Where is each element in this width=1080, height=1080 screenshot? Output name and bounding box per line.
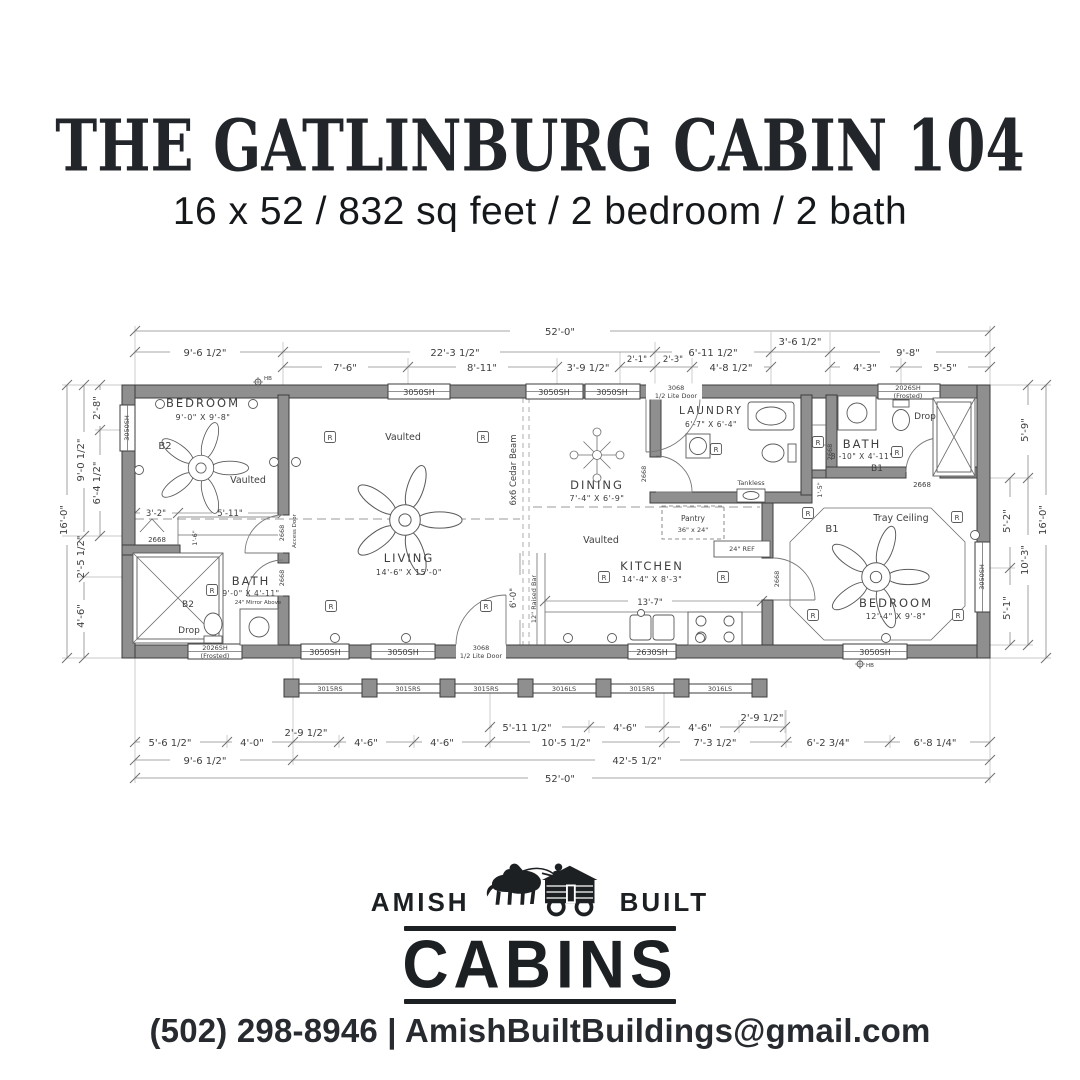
laundry-fixtures	[686, 402, 796, 502]
dim-label: 4'-6"	[430, 738, 454, 749]
ceiling-fans	[158, 421, 929, 630]
window-label: 3050SH	[387, 648, 418, 657]
drop-label-bath2: Drop	[178, 626, 200, 636]
dim-label: 5'-6 1/2"	[149, 738, 192, 749]
window-label: 2630SH	[636, 648, 667, 657]
receptacle-icon: R	[484, 603, 489, 611]
door-label: 1/2 Lite Door	[655, 392, 698, 400]
room-label-bath2: BATH	[232, 574, 271, 588]
poster: THE GATLINBURG CABIN 104 16 x 52 / 832 s…	[0, 0, 1080, 1080]
fridge-label: 24" REF	[729, 545, 755, 553]
drop-label-bath1: Drop	[914, 412, 936, 422]
ceiling-living: Vaulted	[385, 432, 421, 443]
dim-label: 10'-3"	[1020, 545, 1031, 575]
dim-label: 6'-4 1/2"	[92, 462, 103, 505]
dim-label: 2'-3"	[663, 355, 683, 365]
room-size-kitchen: 14'-4" X 8'-3"	[622, 575, 683, 584]
dim-label: 6'-11 1/2"	[688, 348, 737, 359]
dim-label: 9'-0 1/2"	[76, 439, 87, 482]
room-label-bedroom1: BEDROOM	[859, 596, 933, 610]
door-size-label: 2668	[913, 481, 931, 489]
rail-label: 3015RS	[473, 685, 498, 693]
window-label: 3050SH	[123, 415, 131, 441]
door-size-label: 2668	[148, 536, 166, 544]
dim-label: 6'-0"	[509, 588, 519, 608]
dim-label: 6'-2 3/4"	[807, 738, 850, 749]
dim-label: 5'-5"	[933, 363, 957, 374]
receptacle-icon: R	[714, 446, 719, 454]
dim-label: 10'-5 1/2"	[541, 738, 590, 749]
room-size-bedroom1: 12'-4" X 9'-8"	[866, 612, 927, 621]
door-label: 3068	[473, 644, 490, 652]
dim-label: 2'-5 1/2"	[76, 536, 87, 579]
dim-label: 52'-0"	[545, 327, 575, 338]
dim-label: 5'-9"	[1020, 418, 1031, 442]
dim-label: 4'-6"	[613, 723, 637, 734]
receptacle-icon: R	[329, 603, 334, 611]
dim-label: 8'-11"	[467, 363, 497, 374]
raised-bar-label: 12" Raised Bar	[530, 575, 538, 624]
dim-label: 2'-8"	[92, 396, 103, 420]
room-label-laundry: LAUNDRY	[679, 405, 743, 417]
dim-label: 4'-8 1/2"	[710, 363, 753, 374]
dim-label: 5'-11"	[217, 509, 243, 519]
dim-label: 4'-6"	[688, 723, 712, 734]
room-label-bath1: BATH	[843, 437, 882, 451]
tankless-label: Tankless	[736, 479, 765, 487]
room-size-bath1: 8'-10" X 4'-11"	[831, 452, 893, 461]
window-label: 2026SH	[895, 384, 921, 392]
window-label: 3050SH	[978, 564, 986, 590]
room-tag-bedroom1: B1	[825, 524, 838, 535]
window-label: 3050SH	[596, 388, 627, 397]
window-label: 3050SH	[403, 388, 434, 397]
window-label: 3050SH	[309, 648, 340, 657]
ceiling-bedroom2: Vaulted	[230, 475, 266, 486]
receptacle-icon: R	[721, 574, 726, 582]
room-label-kitchen: KITCHEN	[620, 559, 684, 573]
dim-label: 5'-1"	[1002, 596, 1013, 620]
contact-line: (502) 298-8946 | AmishBuiltBuildings@gma…	[0, 1012, 1080, 1050]
receptacle-icon: R	[895, 449, 900, 457]
dim-label: 9'-6 1/2"	[184, 756, 227, 767]
horse-wagon-icon	[470, 852, 620, 926]
dim-label: 4'-3"	[853, 363, 877, 374]
room-size-bath2: 9'-0" X 4'-11"	[222, 589, 279, 598]
logo-word-amish: AMISH	[371, 887, 470, 926]
receptacle-icon: R	[481, 434, 486, 442]
dim-label: 16'-0"	[1038, 505, 1049, 535]
door-size-label: 2668	[278, 525, 286, 542]
dim-label: 52'-0"	[545, 774, 575, 785]
dim-label: 4'-6"	[76, 604, 87, 628]
dim-label: 3'-6 1/2"	[779, 337, 822, 348]
window-label: (Frosted)	[201, 652, 230, 660]
window-label: 2026SH	[202, 644, 228, 652]
rail-label: 3015RS	[317, 685, 342, 693]
rail-label: 3015RS	[629, 685, 654, 693]
rail-label: 3016LS	[552, 685, 576, 693]
receptacle-icon: R	[328, 434, 333, 442]
dim-label: 1'-6"	[191, 530, 199, 545]
bath2-fixtures	[133, 553, 278, 645]
dim-label: 2'-9 1/2"	[285, 728, 328, 739]
room-size-dining: 7'-4" X 6'-9"	[570, 494, 625, 503]
receptacle-icon: R	[811, 612, 816, 620]
dim-label: 5'-2"	[1002, 509, 1013, 533]
rail-label: 3016LS	[708, 685, 732, 693]
room-size-bedroom2: 9'-0" X 9'-8"	[176, 413, 231, 422]
door-size-label: 2668	[278, 570, 286, 587]
window-label: 3050SH	[859, 648, 890, 657]
rail-label: 3015RS	[395, 685, 420, 693]
hb-label: HB	[264, 376, 272, 382]
window-label: (Frosted)	[894, 392, 923, 400]
receptacle-icon: R	[956, 612, 961, 620]
light-symbols	[135, 400, 980, 643]
room-tag-bath2: B2	[182, 600, 194, 610]
dim-label: 16'-0"	[59, 505, 70, 535]
dim-label: 5'-11 1/2"	[502, 723, 551, 734]
receptacle-icon: R	[210, 587, 215, 595]
room-label-living: LIVING	[384, 551, 435, 565]
logo-word-built: BUILT	[620, 887, 710, 926]
dim-label: 42'-5 1/2"	[612, 756, 661, 767]
dim-label: 6'-8 1/4"	[914, 738, 957, 749]
receptacle-icon: R	[816, 439, 821, 447]
mirror-label: 24" Mirror Above	[235, 600, 282, 606]
interior-walls	[122, 395, 977, 645]
dim-label: 22'-3 1/2"	[430, 348, 479, 359]
cedar-beam-label: 6x6 Cedar Beam	[509, 434, 519, 505]
dim-label: 13'-7"	[637, 598, 663, 608]
dim-label: 2'-9 1/2"	[741, 713, 784, 724]
room-label-bedroom2: BEDROOM	[166, 396, 240, 410]
dim-label: 4'-6"	[354, 738, 378, 749]
window-label: 3050SH	[538, 388, 569, 397]
pantry-label: Pantry	[681, 514, 706, 523]
door-size-label: 2668	[826, 444, 834, 461]
receptacle-icon: R	[806, 510, 811, 518]
room-label-dining: DINING	[570, 478, 624, 492]
receptacle-icon: R	[955, 514, 960, 522]
logo-word-cabins: CABINS	[402, 931, 677, 997]
room-size-living: 14'-6" X 15'-0"	[376, 568, 442, 577]
door-size-label: 2668	[773, 571, 781, 588]
dim-label: 7'-3 1/2"	[694, 738, 737, 749]
dim-label: 7'-6"	[333, 363, 357, 374]
pantry-size-label: 36" x 24"	[678, 526, 709, 534]
dim-label: 3'-9 1/2"	[567, 363, 610, 374]
brand-logo: AMISH	[0, 852, 1080, 1004]
door-size-label: 2668	[640, 466, 648, 483]
door-label: 1/2 Lite Door	[460, 652, 503, 660]
receptacle-icon: R	[602, 574, 607, 582]
dim-label: 9'-6 1/2"	[184, 348, 227, 359]
hb-label: HB	[866, 663, 874, 669]
access-door-label: Access Door	[292, 513, 298, 548]
dim-label: 3'-2"	[146, 509, 166, 519]
door-label: 3068	[668, 384, 685, 392]
ceiling-dining: Vaulted	[583, 535, 619, 546]
dim-label: 2'-1"	[627, 355, 647, 365]
dim-label: 9'-8"	[896, 348, 920, 359]
ceiling-bedroom1: Tray Ceiling	[872, 513, 928, 524]
room-tag-bedroom2: B2	[158, 441, 171, 452]
room-size-laundry: 6'-7" X 6'-4"	[685, 420, 737, 429]
porch-rails: 3015RS 3015RS 3015RS 3016LS 3015RS 3016L…	[284, 679, 767, 697]
dim-label: 4'-0"	[240, 738, 264, 749]
room-tag-bath1: B1	[871, 464, 883, 474]
dim-label: 1'-5"	[816, 482, 824, 497]
